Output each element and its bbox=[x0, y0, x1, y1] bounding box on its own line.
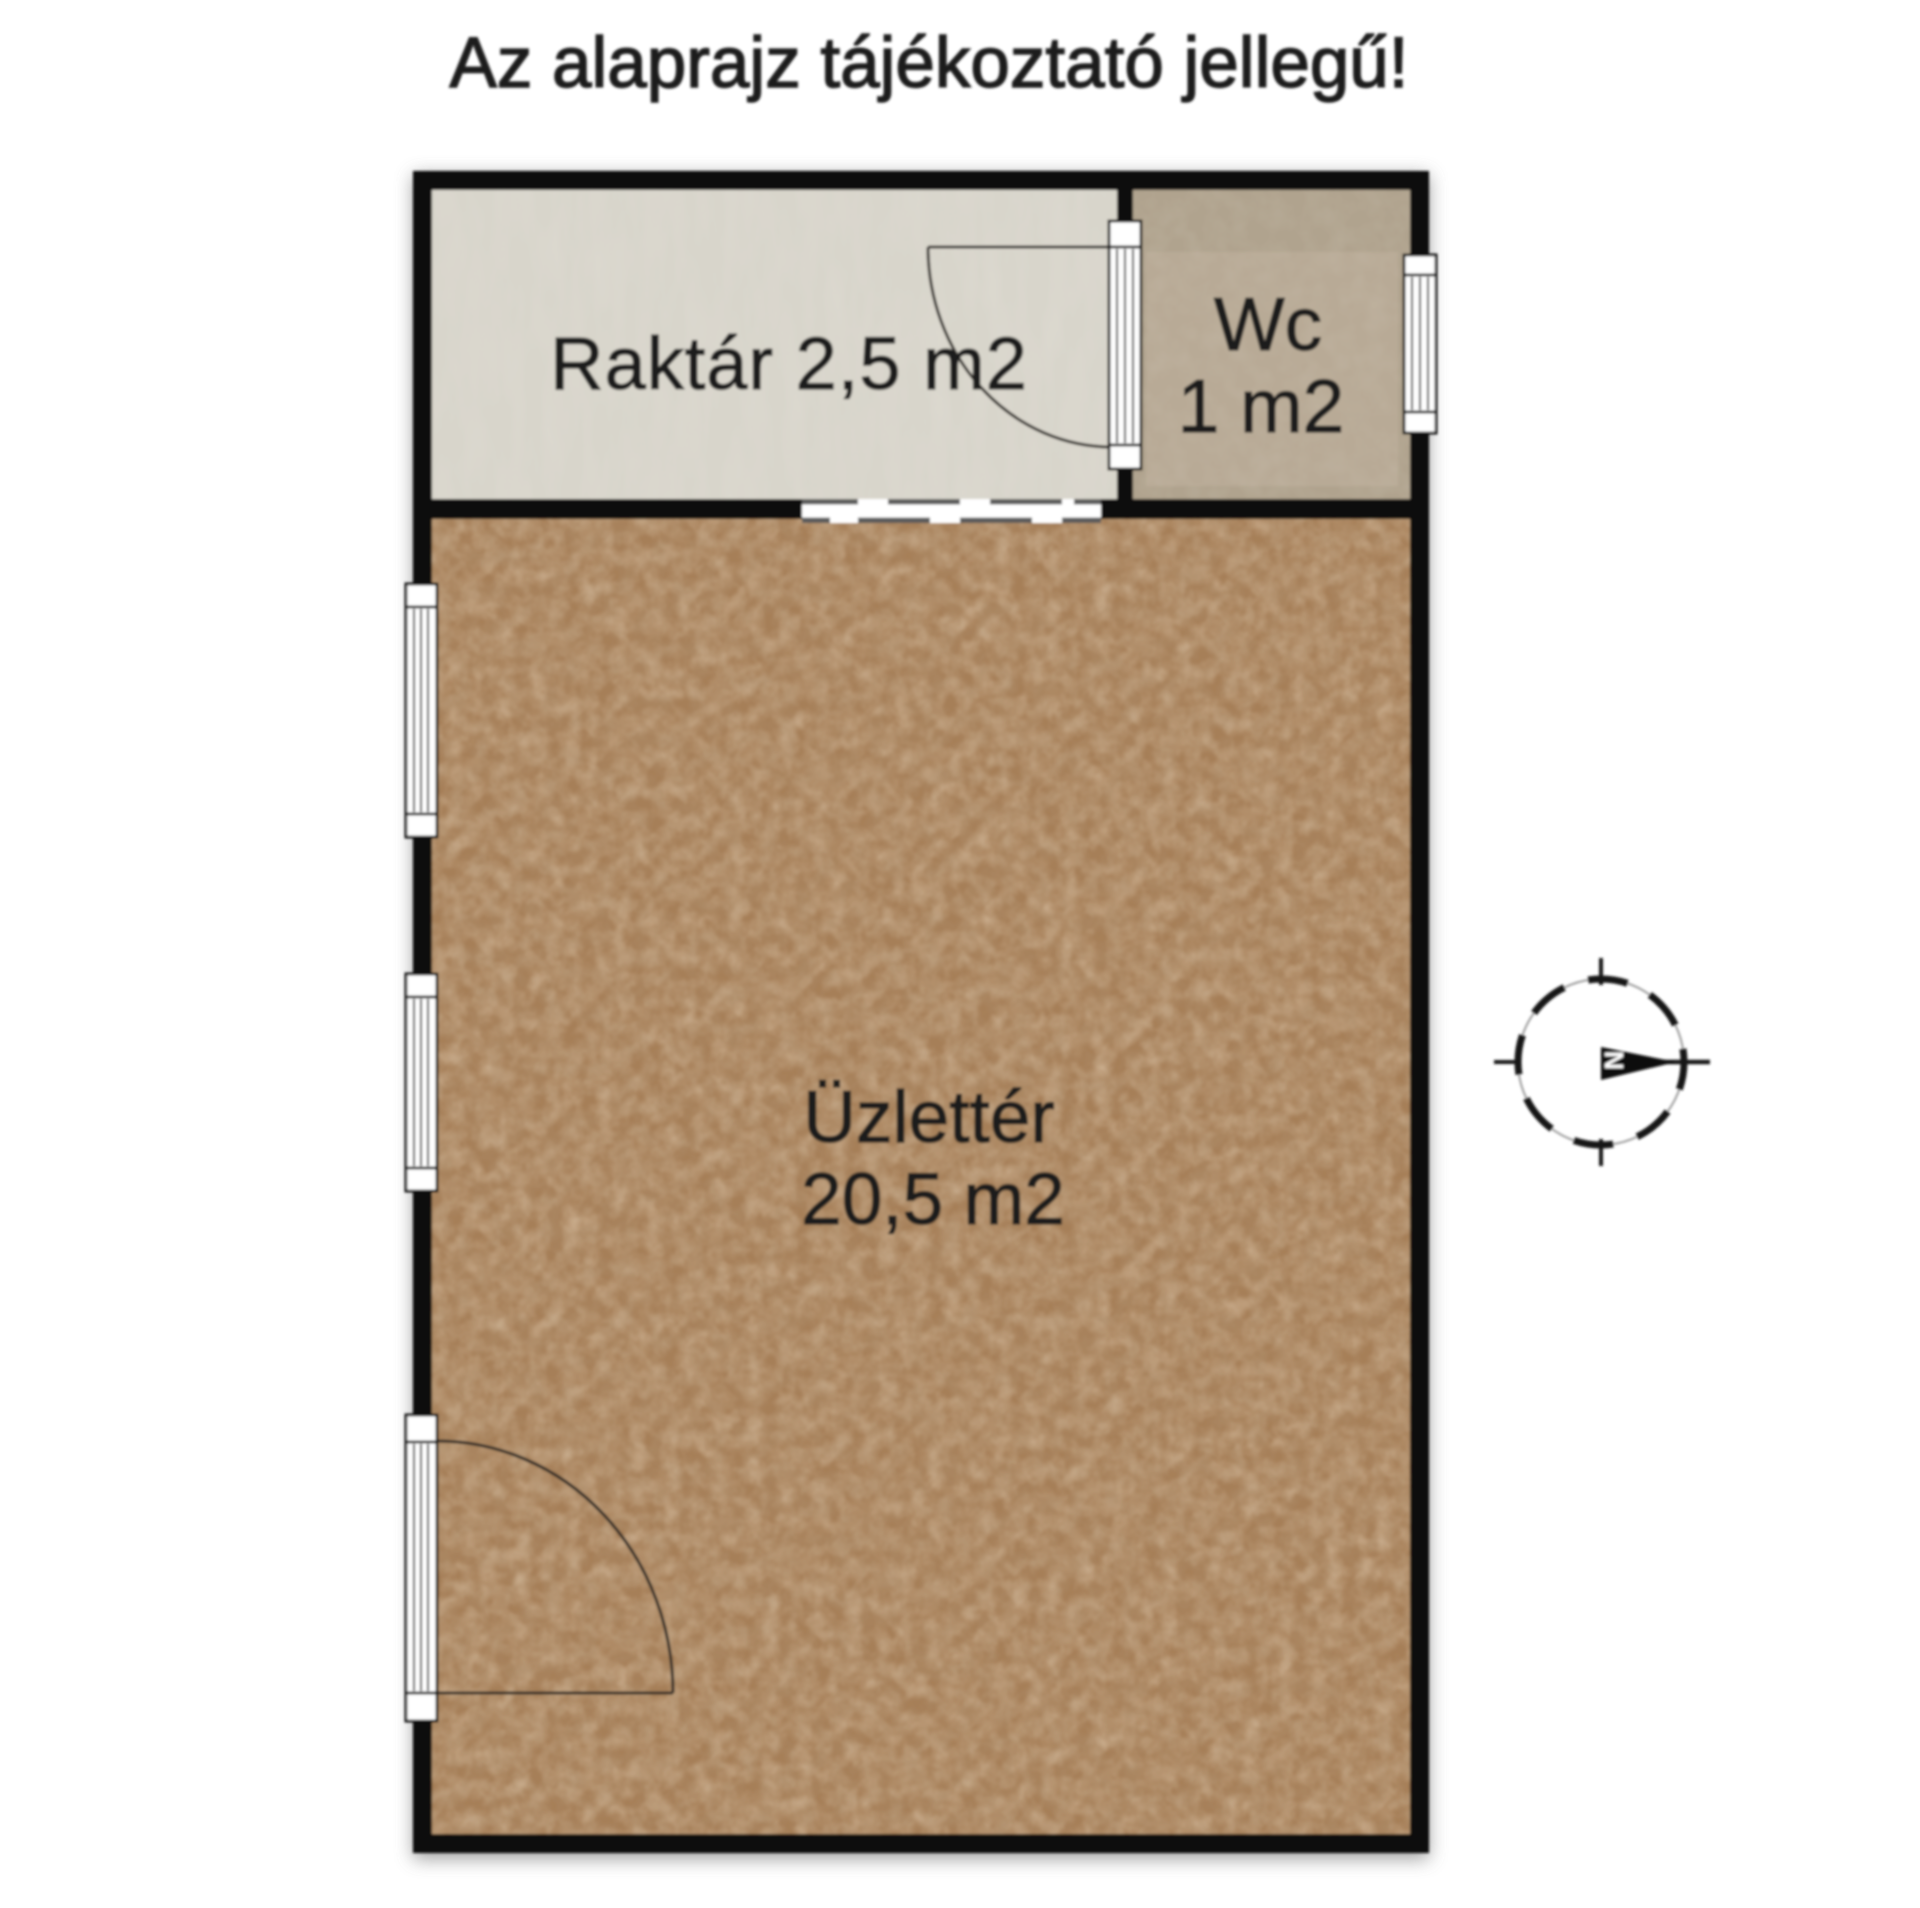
svg-text:Wc: Wc bbox=[1214, 282, 1322, 366]
svg-text:Az alaprajz tájékoztató jelleg: Az alaprajz tájékoztató jellegű! bbox=[449, 24, 1408, 103]
svg-text:20,5 m2: 20,5 m2 bbox=[801, 1159, 1065, 1240]
svg-text:1 m2: 1 m2 bbox=[1178, 364, 1345, 448]
svg-text:Üzlettér: Üzlettér bbox=[803, 1077, 1055, 1158]
svg-text:N: N bbox=[1599, 1051, 1629, 1070]
svg-text:Raktár 2,5 m2: Raktár 2,5 m2 bbox=[550, 322, 1028, 405]
